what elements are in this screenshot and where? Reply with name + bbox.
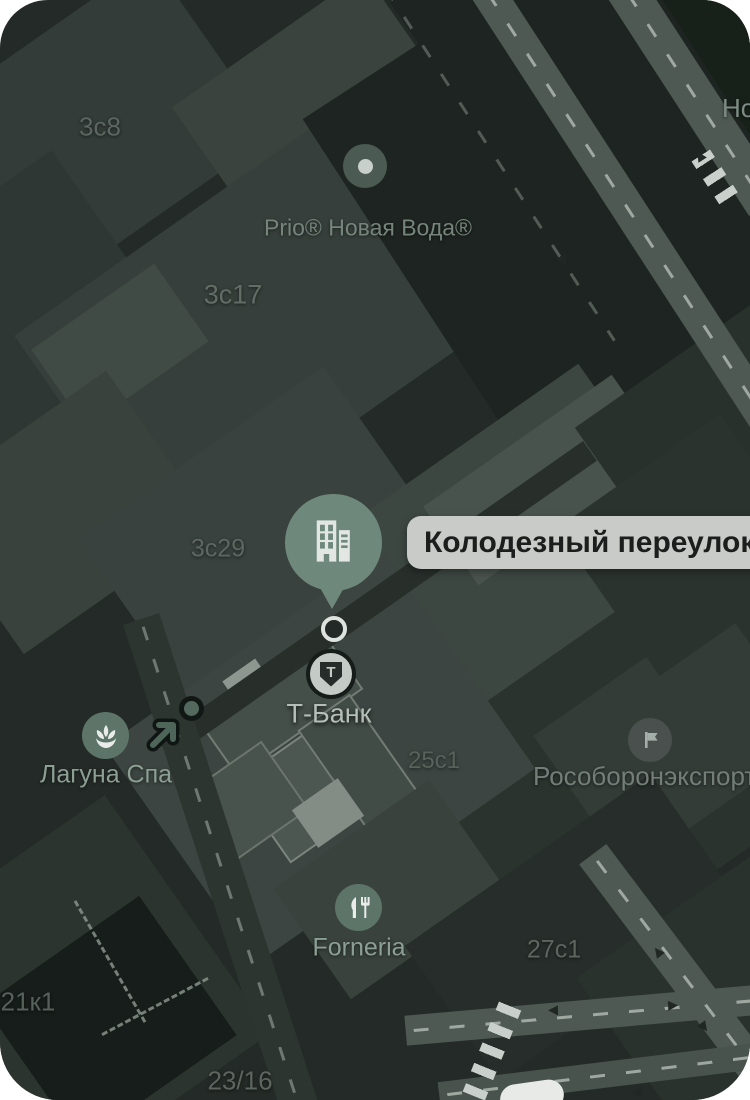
poi-label: Forneria (312, 934, 405, 963)
address-label: 25с1 (408, 747, 460, 775)
poi-marker-rosoboronexport[interactable] (628, 718, 672, 762)
address-label: 21к1 (1, 987, 56, 1018)
road-direction-arrow-icon: ▶ (668, 998, 679, 1012)
spa-lotus-icon (92, 722, 120, 750)
bank-shield-icon: Т (320, 662, 342, 687)
address-label: 27с1 (527, 936, 581, 965)
location-dot-icon (184, 701, 199, 716)
poi-marker-tbank[interactable]: Т (310, 653, 352, 695)
selected-place-bubble[interactable]: Колодезный переулок (407, 516, 750, 569)
selected-place-pin-tail (319, 586, 345, 609)
pin-anchor-dot (321, 616, 347, 642)
poi-label: Лагуна Спа (40, 761, 172, 790)
road-direction-arrow-icon: ▶ (548, 1005, 558, 1018)
poi-marker-forneria[interactable] (335, 884, 382, 931)
map-canvas[interactable]: ▶ ▶ ▶ ▶ ▶ ▶ ▶ 3с8 3с17 3с29 25с1 27с1 21… (0, 0, 750, 1100)
poi-label: Prio® Новая Вода® (243, 214, 493, 243)
poi-label: Рособоронэкспорт (533, 761, 750, 792)
address-label: 3с29 (191, 535, 245, 564)
poi-marker-laguna[interactable] (82, 712, 129, 759)
address-label: 3с8 (79, 112, 121, 143)
address-label: 23/16 (207, 1066, 272, 1097)
navigation-arrow-icon (142, 708, 188, 754)
road-direction-arrow-icon: ▶ (632, 1087, 642, 1100)
dot-icon (358, 159, 373, 174)
selected-place-name: Колодезный переулок (424, 526, 750, 560)
poi-marker-prio[interactable] (343, 144, 387, 188)
address-label: 3с17 (204, 280, 263, 311)
flag-icon (638, 728, 662, 752)
building-icon (307, 515, 359, 567)
restaurant-icon (345, 894, 372, 921)
street-name-label: Но (722, 93, 750, 124)
poi-label: Т-Банк (287, 699, 372, 730)
